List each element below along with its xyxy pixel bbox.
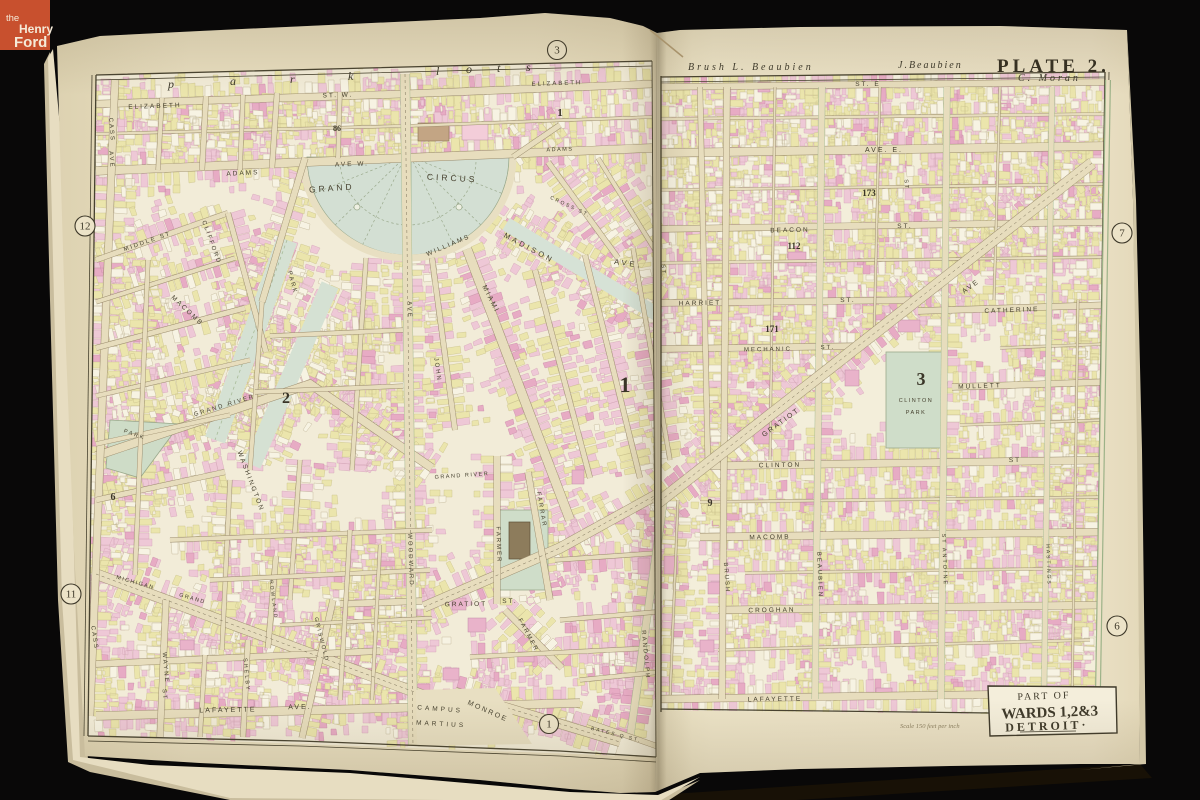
svg-text:3: 3 (917, 369, 926, 389)
svg-text:ST: ST (903, 179, 910, 191)
svg-text:ST.: ST. (840, 297, 856, 304)
svg-text:171: 171 (765, 324, 779, 334)
svg-text:ST.: ST. (897, 223, 913, 230)
svg-text:CROGHAN: CROGHAN (748, 607, 795, 615)
svg-text:ST: ST (1009, 457, 1021, 464)
svg-text:86: 86 (333, 124, 341, 133)
svg-text:ST.: ST. (821, 345, 836, 351)
svg-text:7: 7 (1119, 228, 1125, 240)
svg-text:MECHANIC: MECHANIC (744, 347, 792, 354)
svg-text:CLINTON: CLINTON (899, 398, 934, 404)
svg-text:AVE W.: AVE W. (335, 160, 369, 168)
svg-text:GRATIOT: GRATIOT (445, 601, 488, 609)
svg-text:the: the (6, 13, 19, 24)
svg-text:112: 112 (787, 241, 801, 251)
svg-text:CLINTON: CLINTON (759, 462, 802, 470)
svg-text:173: 173 (862, 188, 876, 198)
svg-text:AVE: AVE (406, 301, 413, 319)
svg-text:2: 2 (282, 390, 290, 407)
svg-text:ADAMS: ADAMS (546, 147, 573, 154)
svg-text:PARK: PARK (906, 410, 927, 416)
svg-text:11: 11 (66, 589, 77, 601)
svg-text:BEACON: BEACON (770, 227, 810, 235)
svg-text:Ford: Ford (14, 34, 47, 51)
svg-text:6: 6 (111, 492, 116, 503)
svg-text:ST.: ST. (502, 598, 518, 605)
svg-text:12: 12 (80, 221, 91, 233)
svg-text:MACOMB: MACOMB (749, 534, 790, 542)
svg-text:AVE. E.: AVE. E. (865, 147, 903, 154)
svg-text:6: 6 (1114, 621, 1120, 633)
